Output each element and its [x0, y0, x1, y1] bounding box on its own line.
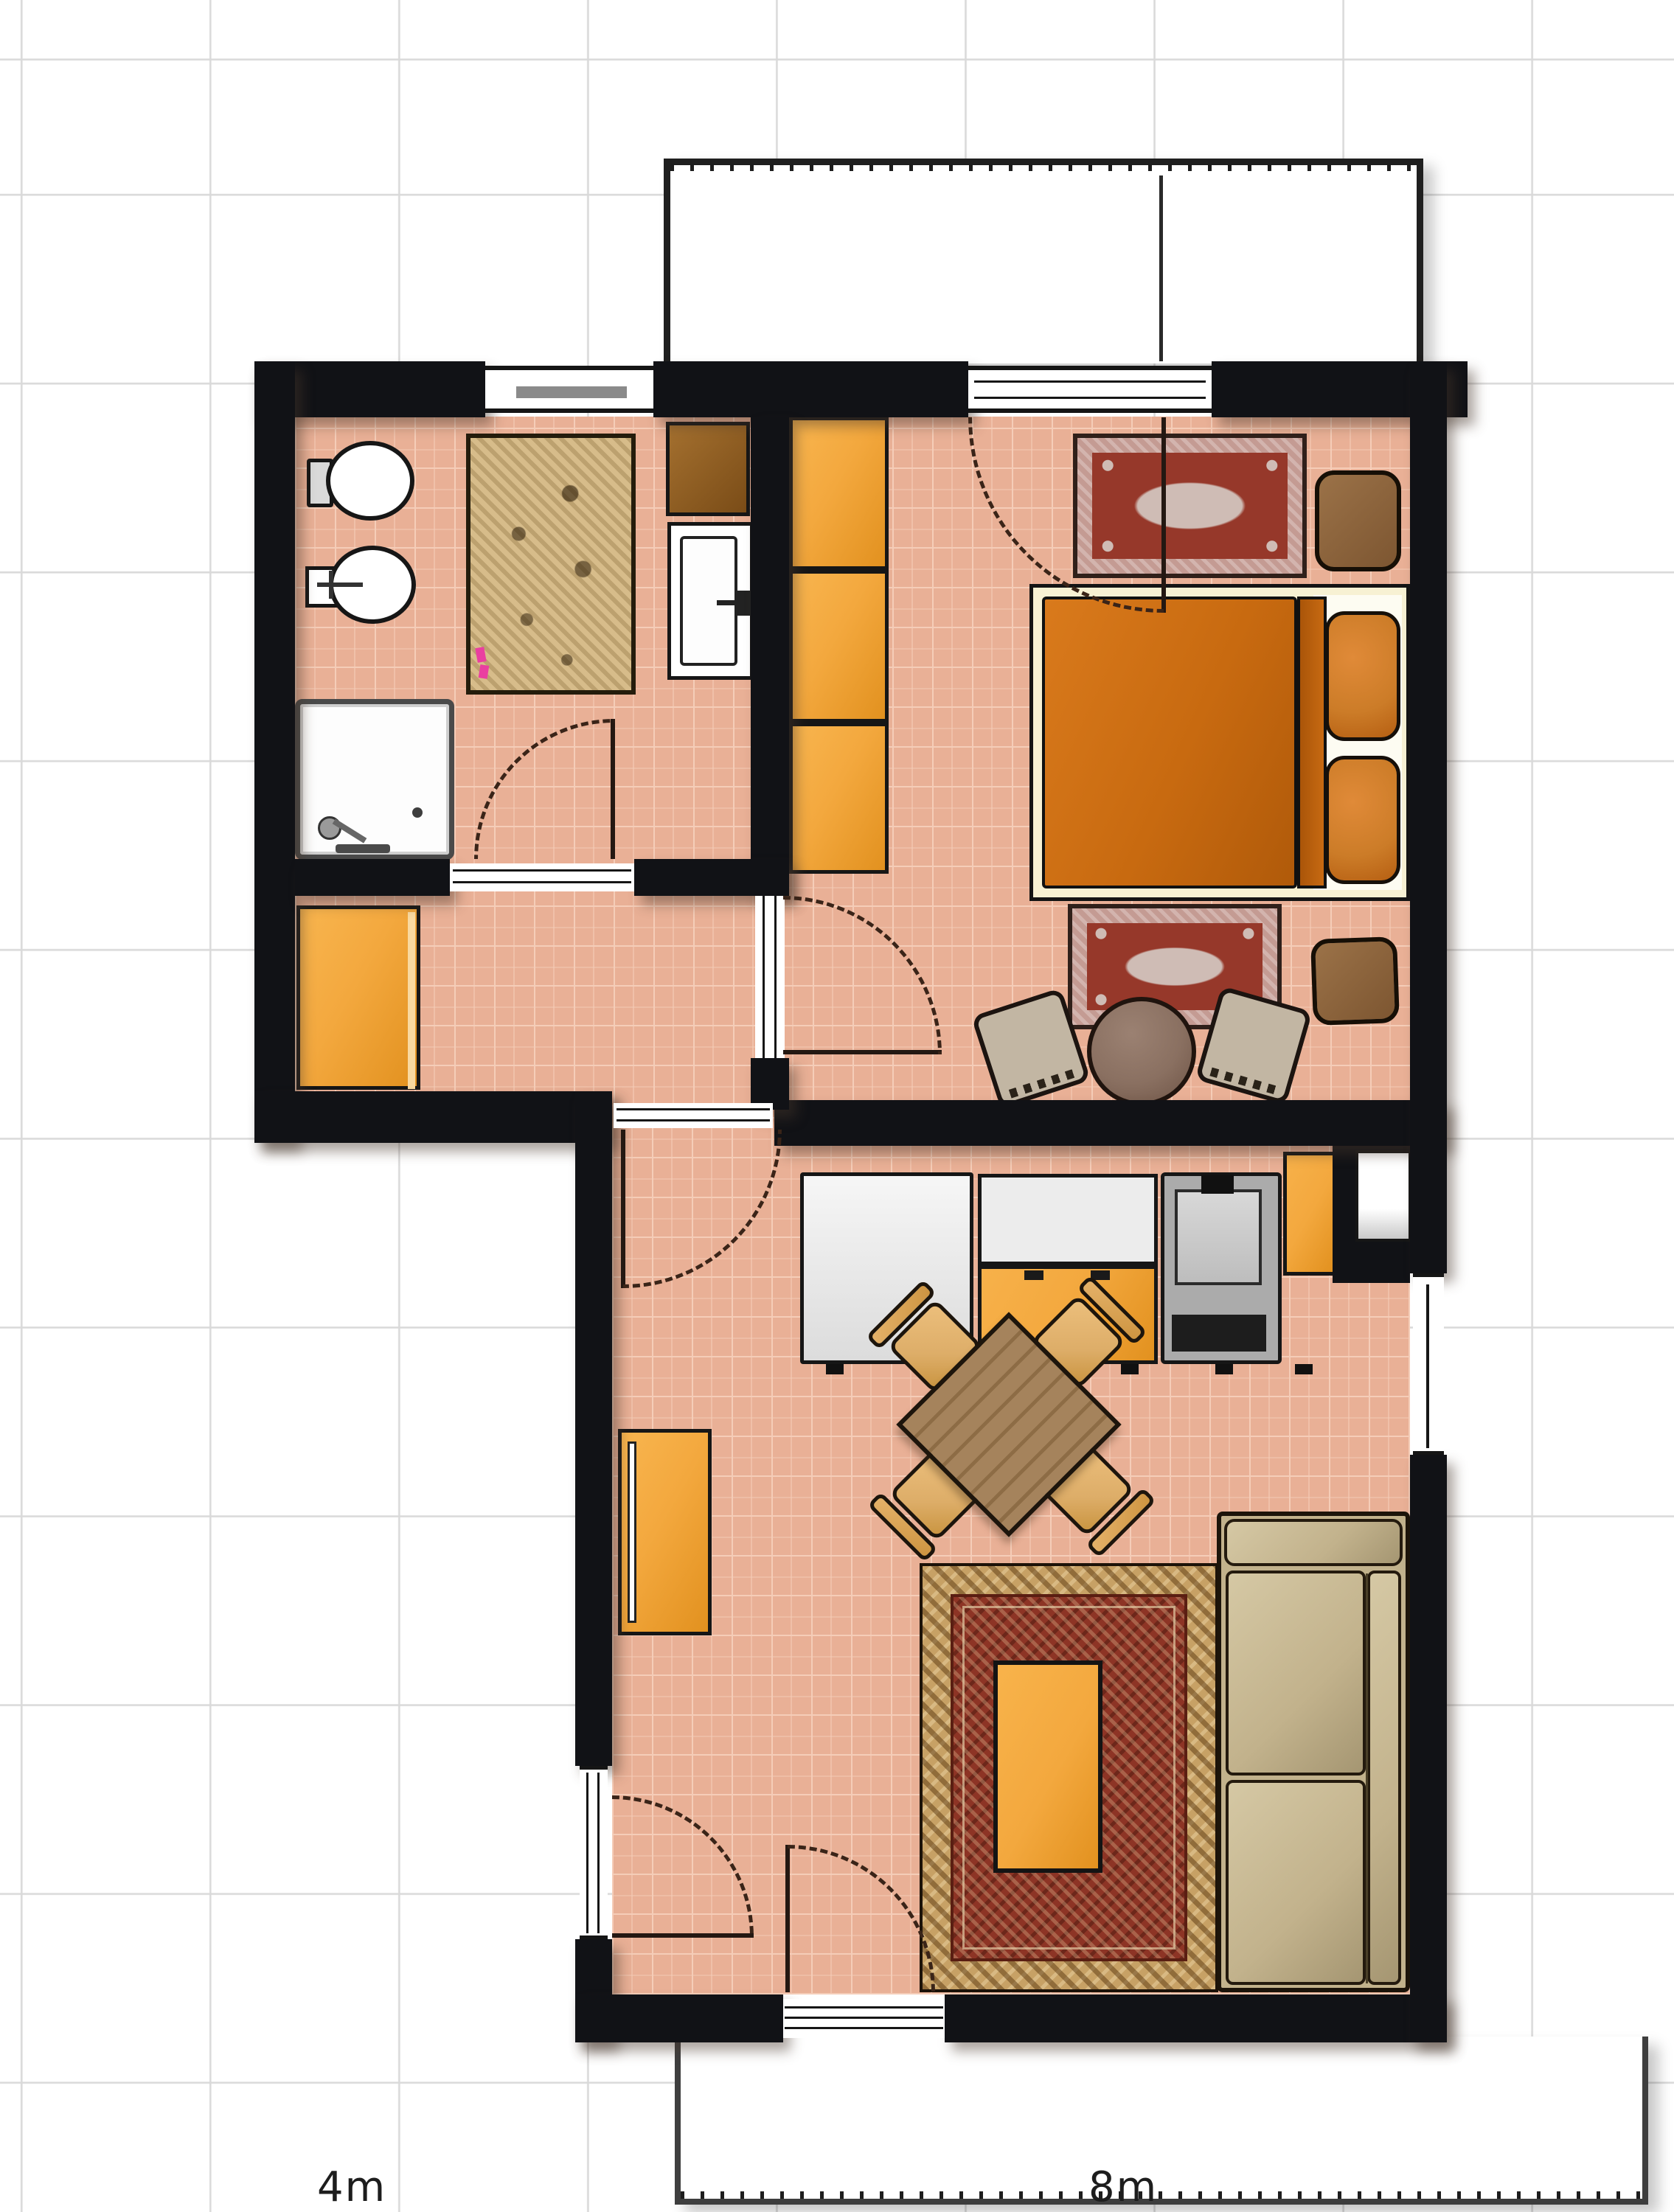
shower[interactable]	[295, 699, 454, 860]
wall-livingroom-left-upper	[575, 1091, 612, 1766]
sofa-back-seam	[1366, 1573, 1368, 1983]
bathroom-door-leaf[interactable]	[611, 719, 615, 859]
window-glass-line	[516, 386, 627, 398]
bedroom-round-table[interactable]	[1087, 997, 1196, 1106]
wall-left	[254, 361, 295, 1143]
livingroom-balcony-door-frame[interactable]	[783, 1999, 945, 2038]
balcony-top-railing	[670, 164, 1417, 171]
shower-drain-icon	[412, 807, 423, 818]
washbasin-cabinet[interactable]	[667, 522, 754, 680]
hallway-sideboard[interactable]	[296, 905, 420, 1090]
livingroom-right-window[interactable]	[1413, 1273, 1444, 1455]
bidet-faucet-icon	[329, 571, 333, 599]
frame-line	[785, 2027, 943, 2029]
bidet-faucet-icon	[317, 582, 363, 587]
bed-duvet-fold	[1297, 597, 1327, 888]
frame-line	[586, 1773, 588, 1933]
rug-above-bed[interactable]	[1073, 434, 1307, 578]
frame-line	[974, 380, 1206, 383]
sofa-back-cushion	[1367, 1571, 1401, 1985]
counter-foot-icon	[1215, 1364, 1233, 1374]
counter-foot-icon	[1295, 1364, 1313, 1374]
wardrobe-section-middle[interactable]	[789, 570, 889, 723]
wall-bath-bedroom-divider	[751, 417, 789, 896]
drawer-handle-icon	[1024, 1270, 1043, 1280]
kitchen-counter[interactable]	[978, 1174, 1158, 1265]
stool-top[interactable]	[1315, 470, 1401, 571]
bed-duvet	[1042, 597, 1297, 888]
stove-notch	[1201, 1175, 1234, 1194]
bedroom-balcony-door-leaf[interactable]	[1161, 417, 1166, 613]
wall-right-lower	[1410, 1455, 1447, 2042]
frame-line	[453, 881, 631, 883]
hallway-livingroom-door-frame[interactable]	[614, 1103, 773, 1128]
wall-bottom-1	[575, 1994, 783, 2042]
coffee-table[interactable]	[993, 1660, 1102, 1873]
wardrobe-section-top[interactable]	[789, 417, 889, 570]
frame-line	[617, 1119, 770, 1121]
double-bed[interactable]	[1029, 584, 1410, 901]
kitchen-wall-niche	[1355, 1150, 1411, 1242]
frame-line	[774, 896, 777, 1058]
stool-bottom[interactable]	[1310, 936, 1400, 1026]
sideboard-edge	[408, 912, 415, 1089]
frame-line	[1426, 1284, 1429, 1448]
bathroom-brown-cabinet[interactable]	[666, 422, 750, 516]
wardrobe-section-bottom[interactable]	[789, 723, 889, 874]
frame-line	[785, 2017, 943, 2019]
balcony-bottom	[675, 2037, 1648, 2205]
livingroom-left-glass-door[interactable]	[580, 1766, 608, 1939]
counter-foot-icon	[1121, 1364, 1139, 1374]
wall-bath-bottom-1	[295, 859, 450, 896]
frame-line	[617, 1108, 770, 1110]
ruler-label-8m: 8m	[1088, 2163, 1158, 2211]
floorplan-canvas: 4m 8m	[0, 0, 1674, 2212]
wall-bottom-2	[945, 1994, 1447, 2042]
wall-bath-bottom-2	[634, 859, 789, 896]
ruler-label-4m: 4m	[317, 2163, 386, 2211]
shower-bar-icon	[336, 844, 390, 853]
frame-line	[785, 2006, 943, 2008]
livingroom-left-door-leaf[interactable]	[612, 1933, 754, 1938]
hallway-livingroom-door-leaf[interactable]	[621, 1130, 625, 1288]
balcony-door-line	[1159, 175, 1163, 361]
hallway-bedroom-door-frame[interactable]	[755, 896, 785, 1058]
frame-line	[597, 1773, 600, 1933]
faucet-icon	[717, 600, 739, 605]
sofa[interactable]	[1217, 1512, 1410, 1992]
sofa-armrest	[1224, 1519, 1403, 1566]
sofa-seat	[1226, 1571, 1366, 1775]
frame-line	[763, 896, 765, 1058]
pillow	[1325, 611, 1400, 741]
stove-drawer	[1172, 1315, 1266, 1352]
counter-end-unit[interactable]	[1283, 1152, 1336, 1276]
counter-foot-icon	[826, 1364, 844, 1374]
toilet[interactable]	[326, 441, 414, 521]
wall-right-upper	[1410, 361, 1447, 1273]
livingroom-balcony-door-leaf[interactable]	[785, 1845, 790, 1992]
balcony-top	[664, 159, 1423, 364]
wall-hallway-bottom	[254, 1091, 612, 1143]
bedroom-balcony-door-frame[interactable]	[968, 366, 1212, 413]
stove[interactable]	[1161, 1172, 1282, 1364]
wall-kitchen-top	[774, 1100, 1447, 1146]
hallway-bedroom-door-leaf[interactable]	[783, 1050, 942, 1054]
bookshelf[interactable]	[618, 1429, 712, 1635]
bookshelf-door	[628, 1441, 636, 1623]
pillow	[1325, 756, 1400, 884]
bath-rug[interactable]	[466, 434, 636, 695]
frame-line	[453, 869, 631, 872]
wall-corridor-stub	[751, 1058, 789, 1110]
frame-line	[974, 397, 1206, 399]
bathroom-window[interactable]	[485, 366, 653, 413]
oven	[1175, 1189, 1262, 1285]
sofa-seat	[1226, 1780, 1366, 1985]
bathroom-door-frame[interactable]	[450, 863, 634, 891]
balcony-bottom-railing	[681, 2191, 1642, 2199]
wall-top-2	[653, 361, 968, 417]
